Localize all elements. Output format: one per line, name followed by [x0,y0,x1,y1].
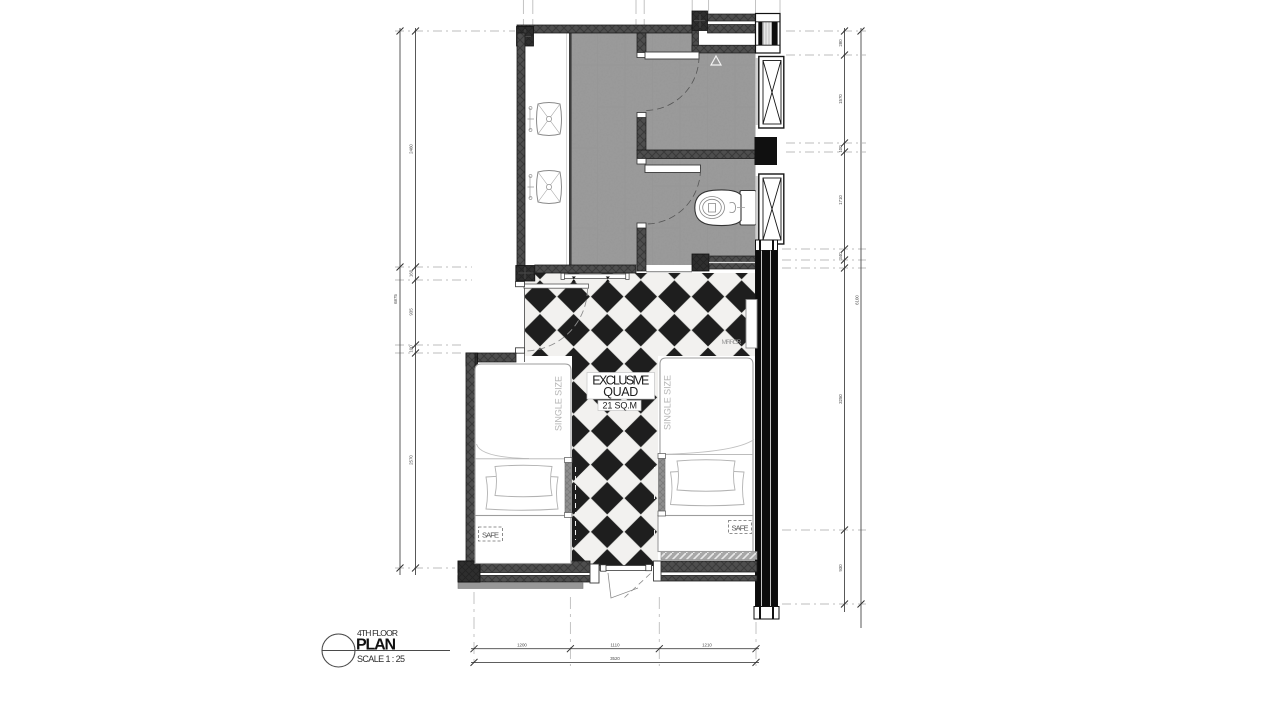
svg-text:SINGLE SIZE: SINGLE SIZE [554,375,564,431]
svg-text:100: 100 [838,145,843,153]
svg-text:6875: 6875 [393,294,398,304]
svg-text:100: 100 [409,345,414,353]
svg-text:21 SQ.M: 21 SQ.M [603,401,638,411]
svg-text:SAFE: SAFE [732,524,749,533]
svg-text:MIRROR: MIRROR [722,339,742,346]
svg-text:3520: 3520 [610,656,620,661]
svg-text:SAFE: SAFE [482,531,499,540]
svg-text:PLAN: PLAN [356,637,396,654]
svg-text:3250: 3250 [838,394,843,404]
svg-text:SCALE 1 : 25: SCALE 1 : 25 [357,654,405,664]
svg-text:935: 935 [409,308,414,316]
svg-text:2570: 2570 [409,455,414,465]
svg-text:6100: 6100 [855,295,860,305]
svg-text:1110: 1110 [610,643,620,648]
svg-text:1710: 1710 [838,195,843,205]
svg-text:SINGLE SIZE: SINGLE SIZE [663,374,673,430]
svg-text:1200: 1200 [517,643,527,648]
svg-text:930: 930 [838,564,843,572]
svg-text:1210: 1210 [702,643,712,648]
svg-text:160: 160 [409,269,414,277]
svg-text:280: 280 [838,39,843,47]
svg-text:2460: 2460 [409,144,414,154]
svg-text:QUAD: QUAD [603,385,638,399]
svg-text:1570: 1570 [838,94,843,104]
svg-text:340: 340 [838,252,843,260]
